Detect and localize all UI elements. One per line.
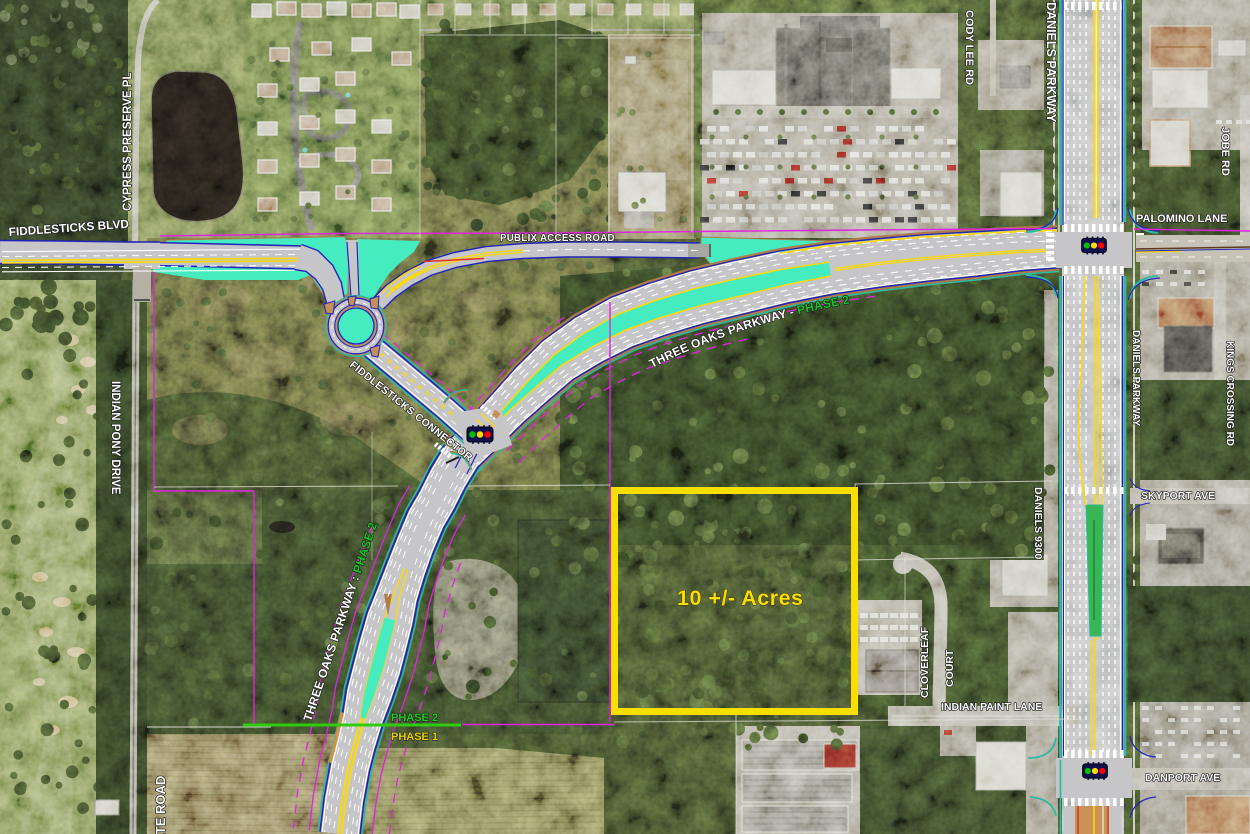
svg-text:CYPRESS PRESERVE PL: CYPRESS PRESERVE PL [122,73,134,211]
svg-text:JOBE RD: JOBE RD [1219,127,1231,176]
svg-text:DANIELS 9300: DANIELS 9300 [1032,487,1044,560]
svg-text:INDIAN PAINT LANE: INDIAN PAINT LANE [941,701,1042,713]
svg-text:PRIVATE ROAD: PRIVATE ROAD [153,776,168,834]
svg-text:DANIELS PARKWAY: DANIELS PARKWAY [1130,330,1141,426]
svg-text:SKYPORT AVE: SKYPORT AVE [1141,490,1215,502]
svg-text:KINGS CROSSING RD: KINGS CROSSING RD [1224,341,1235,446]
svg-text:PHASE 2: PHASE 2 [391,712,438,724]
svg-text:INDIAN PONY DRIVE: INDIAN PONY DRIVE [109,381,121,495]
svg-text:PALOMINO LANE: PALOMINO LANE [1136,213,1227,225]
svg-text:DANIELS PARKWAY: DANIELS PARKWAY [1044,2,1058,123]
svg-text:10 +/- Acres: 10 +/- Acres [677,586,804,610]
svg-text:COURT: COURT [944,649,956,687]
svg-text:CODY LEE RD: CODY LEE RD [963,10,975,85]
svg-text:PUBLIX ACCESS ROAD: PUBLIX ACCESS ROAD [500,233,615,244]
svg-text:DANPORT AVE: DANPORT AVE [1145,772,1220,784]
svg-text:PHASE 1: PHASE 1 [391,731,438,743]
svg-text:CLOVERLEAF: CLOVERLEAF [919,626,931,698]
